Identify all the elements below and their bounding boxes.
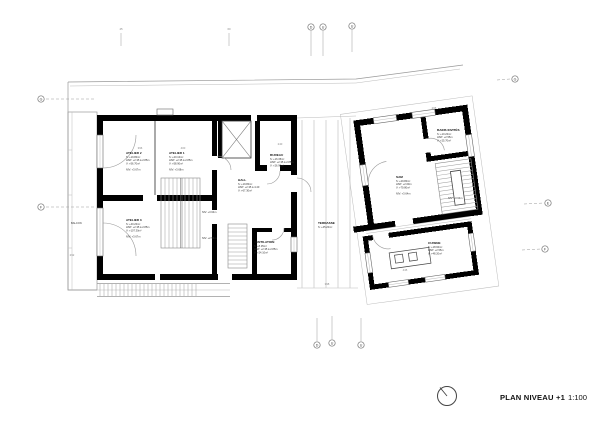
niv-annotation-1: NIV: +3.64m [202,210,216,214]
atelier1-niv: NIV: +3.68m [169,168,183,172]
hall-label: HALL [238,178,246,182]
atelier3-label: ATELIER 3 [126,218,142,222]
dim-atelier2: 396 [138,146,143,150]
ventilation-label: VENTILATION [254,240,275,244]
service-stair [228,224,247,268]
niv-annotation-3: NIV: +3.64m [448,196,462,200]
main-stair [161,178,200,248]
atelier2-label: ATELIER 2 [126,151,142,155]
elevator-shaft [222,121,251,158]
sam-niv: NIV: +3.64m [396,192,410,196]
dim-atelier1: 400 [181,146,186,150]
plan-title: PLAN NIVEAU +1 [500,393,566,402]
rooflight [157,109,173,115]
sam-label: SAM [396,175,403,179]
terrace-decking [297,116,356,288]
grid-label-bottom-u2: U [360,343,363,347]
hall-vol: V: +67.30m³ [238,188,252,192]
grid-markers-left: G F [38,96,96,210]
grid-label-top-d: D [310,25,313,29]
right-building [337,96,498,305]
grid-label-top-u1: U [322,25,325,29]
plan-scale: 1:100 [568,393,587,402]
kitchen-island [389,247,431,268]
cuisine-vol: V: +48.20m³ [428,251,442,255]
dim-terrasse: 398 [325,282,330,286]
atelier2-niv: NIV: +3.67m [126,168,140,172]
grid-label-right-g: G [514,77,517,81]
grid-markers-top: D U U [308,23,355,56]
terrasse-area: S: +45.20m² [318,225,332,229]
dim-balcon: 292 [70,253,75,257]
dim-top-1: 45 [119,27,123,31]
grid-label-left-g: G [40,97,43,101]
balcony [68,112,97,290]
atelier3-vol: V: +107.30m³ [126,228,142,232]
grid-label-bottom-u1: U [331,341,334,345]
dim-bureau: 240 [278,142,283,146]
atelier1-label: ATELIER 1 [169,151,185,155]
atelier3-niv: NIV: +3.67m [126,235,140,239]
floor-plan-sheet: D U U D U U G F G E F 45 60 39 [0,0,600,425]
dim-cuisine: 445 [403,268,408,272]
floor-plan-drawing: D U U D U U G F G E F 45 60 39 [0,0,600,425]
balcon-label: BALCON [71,221,82,225]
dim-top-2: 60 [227,27,231,31]
dim-sam: 265 [432,106,437,110]
room-labels: ATELIER 2 S: +19.80m² HSP: +2.35 à 2.85m… [71,127,462,255]
title-block: PLAN NIVEAU +1 1:100 [438,387,588,406]
bureau-label: BUREAU [270,153,284,157]
grid-markers-bottom: D U U [314,316,364,348]
sam-vol: V: +79.80m³ [396,185,410,189]
exterior-stair [97,284,230,297]
grid-label-bottom-d: D [316,343,319,347]
bains-vol: V: +25.70m³ [437,138,451,142]
atelier1-vol: V: +58.90m³ [169,161,183,165]
bureau-vol: V: +26.90m³ [270,163,284,167]
cuisine-label: CUISINE [428,241,441,245]
niv-annotation-2: NIV: +2.56m [202,236,216,240]
north-arrow-icon [438,387,457,406]
bains-label: BAINS INVITÉS [437,127,460,132]
grid-markers-right: G E F [497,76,551,252]
atelier2-vol: V: +56.70m³ [126,161,140,165]
terrasse-label: TERRASSE [318,221,335,225]
grid-label-top-u2: U [351,24,354,28]
ventilation-vol: V: +24.10m³ [254,250,268,254]
